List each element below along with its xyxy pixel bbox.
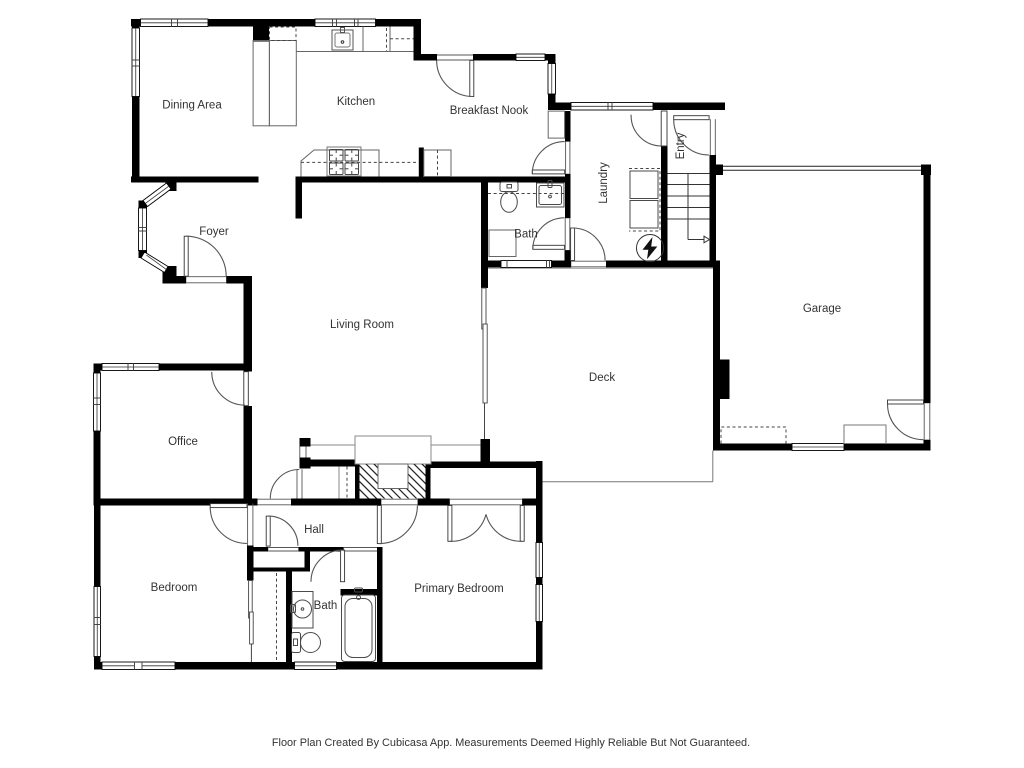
svg-text:Foyer: Foyer	[199, 226, 229, 238]
svg-text:Breakfast Nook: Breakfast Nook	[450, 105, 529, 117]
svg-text:Dining Area: Dining Area	[162, 100, 222, 112]
svg-text:Living Room: Living Room	[330, 319, 394, 331]
svg-text:Primary Bedroom: Primary Bedroom	[414, 583, 503, 595]
svg-text:Office: Office	[168, 436, 198, 448]
svg-text:Deck: Deck	[589, 372, 615, 384]
svg-text:Bedroom: Bedroom	[151, 582, 198, 594]
svg-text:Bath: Bath	[314, 600, 338, 612]
svg-text:Entry: Entry	[675, 132, 687, 159]
svg-text:Garage: Garage	[803, 303, 841, 315]
svg-text:Laundry: Laundry	[598, 162, 610, 204]
svg-text:Hall: Hall	[304, 524, 324, 536]
svg-text:Floor Plan Created By Cubicasa: Floor Plan Created By Cubicasa App. Meas…	[272, 737, 750, 749]
svg-text:Bath: Bath	[514, 229, 538, 241]
svg-text:Kitchen: Kitchen	[337, 96, 375, 108]
